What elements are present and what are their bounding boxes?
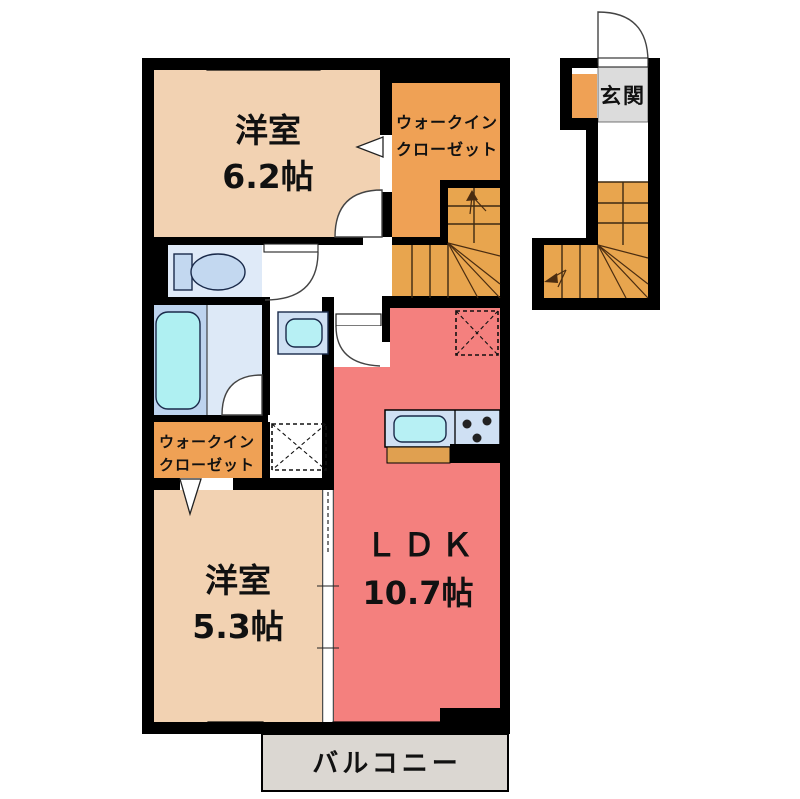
kitchen-wall-stub xyxy=(450,444,500,463)
balcony-label: バルコニー xyxy=(312,749,461,779)
wall-stairs-stub xyxy=(440,188,448,245)
toilet-fixture xyxy=(174,254,245,290)
bedroom-second-floor xyxy=(152,490,322,722)
toilet-door-leaf xyxy=(264,244,318,252)
stairs-main-lower xyxy=(392,245,448,298)
ldk-size: 10.7帖 xyxy=(363,574,474,612)
wall-ldk-top xyxy=(382,296,510,308)
wall-wic-left-right xyxy=(262,422,270,478)
wall-bedroom2-top xyxy=(142,478,334,490)
wall-below-shoebox xyxy=(560,118,598,130)
sliding-door-strip xyxy=(322,490,334,722)
kitchen-counter xyxy=(385,410,500,463)
ldk-door-leaf xyxy=(336,314,381,326)
wic-left-label-2: クローゼット xyxy=(159,456,255,474)
wic-top-label-2: クローゼット xyxy=(396,140,498,159)
wic-top-floor-l xyxy=(392,180,440,237)
wall-genkan-topleft xyxy=(560,58,598,68)
entrance-door-leaf xyxy=(598,58,648,67)
floor-plan-page: 洋室 6.2帖 ウォークイン クローゼット 玄関 ウォークイン クローゼット 洋… xyxy=(0,0,800,795)
entrance-door-swing xyxy=(598,12,648,62)
stove-burner xyxy=(483,417,492,426)
wall-closet-stairs xyxy=(440,180,500,188)
wall-below-closet-col xyxy=(392,237,440,245)
wall-right xyxy=(500,58,510,734)
stove-burner xyxy=(473,434,482,443)
wall-toilet-bottom xyxy=(142,297,270,305)
bathtub xyxy=(156,312,200,409)
bedroom-main-size: 6.2帖 xyxy=(222,157,313,196)
entrance-label: 玄関 xyxy=(600,84,646,108)
wall-genkan-mid xyxy=(586,130,598,245)
wic-left-label-1: ウォークイン xyxy=(159,433,255,451)
wall-genkan-right xyxy=(648,58,660,310)
ldk-label: ＬＤＫ xyxy=(365,526,479,564)
wall-top-closet xyxy=(380,58,510,83)
bedroom-second-label: 洋室 xyxy=(205,561,271,600)
ldk-floor-c xyxy=(390,700,442,722)
washbasin xyxy=(278,312,328,354)
ldk-floor-a xyxy=(390,308,500,710)
floor-plan-drawing: 洋室 6.2帖 ウォークイン クローゼット 玄関 ウォークイン クローゼット 洋… xyxy=(0,0,800,795)
wall-bottom-right-block xyxy=(440,708,510,734)
bedroom-main-door-gap xyxy=(363,237,392,245)
counter-edge xyxy=(387,447,450,463)
bedroom-main-label: 洋室 xyxy=(235,111,301,150)
wall-bath-right xyxy=(262,305,270,415)
wall-toilet-left xyxy=(142,245,168,305)
bedroom-second-size: 5.3帖 xyxy=(192,607,283,646)
wall-ldk-door-stub xyxy=(382,296,390,342)
shoe-cabinet xyxy=(572,74,597,118)
kitchen-sink xyxy=(394,416,446,442)
wic-top-label-1: ウォークイン xyxy=(396,113,498,132)
stove-burner xyxy=(463,420,472,429)
wall-genkan-bottom xyxy=(532,298,660,310)
wall-left xyxy=(142,58,154,734)
wall-bath-bottom xyxy=(142,415,268,422)
hallway-floor xyxy=(270,245,392,297)
